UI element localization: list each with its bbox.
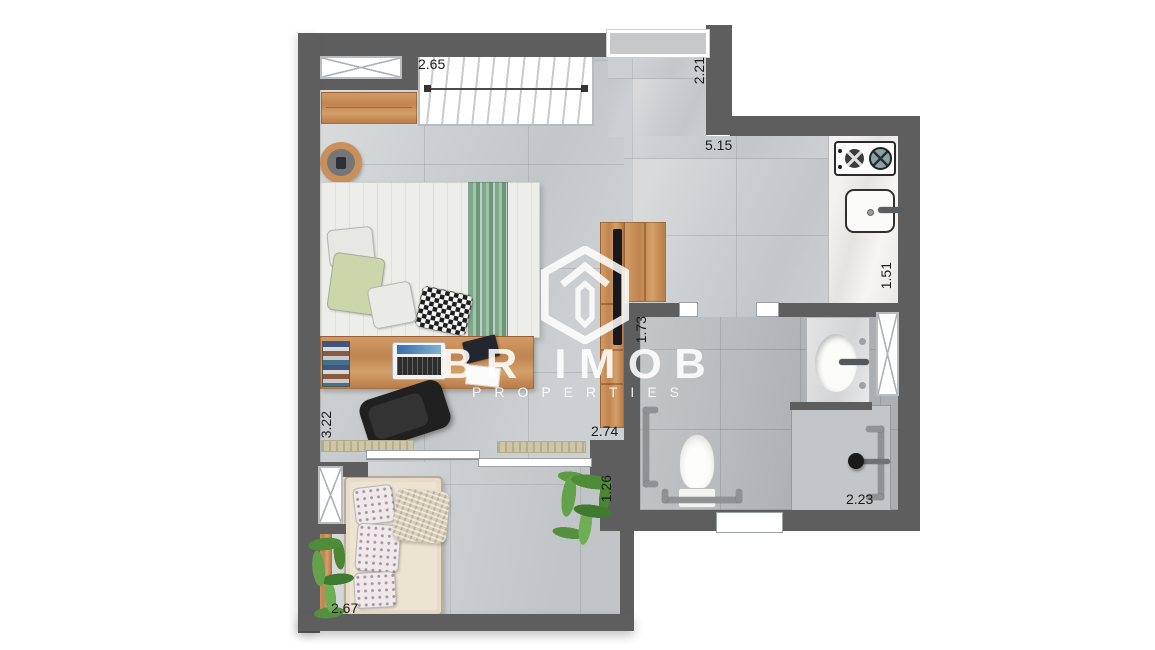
wall-kitchen-vertical — [706, 25, 732, 135]
storage-cabinet — [624, 222, 666, 302]
floor-plan-image: 2.652.215.151.511.732.743.221.262.232.67… — [0, 0, 1155, 650]
door-mat — [497, 441, 586, 453]
wardrobe-closet — [418, 55, 594, 126]
bedroom-window — [320, 56, 402, 79]
grab-bar — [643, 407, 658, 413]
potted-plant — [540, 455, 629, 561]
sink-drain — [867, 209, 874, 216]
bed-runner — [468, 182, 508, 338]
rod-end — [581, 85, 588, 92]
rod-end — [424, 85, 431, 92]
wall-shelf — [321, 92, 417, 124]
brand-hexagon-logo-icon — [541, 246, 629, 344]
watermark-brand: BR IMOB — [434, 340, 725, 388]
shower-head-icon — [848, 453, 864, 469]
bathroom-faucet — [839, 359, 869, 365]
balcony-window — [318, 466, 343, 524]
grab-bar — [662, 497, 742, 503]
closet-hanger-rod — [426, 88, 586, 90]
round-side-table — [320, 142, 362, 183]
stove-knob — [838, 149, 842, 153]
watermark-tagline: PROPERTIES — [452, 384, 712, 400]
grab-bar — [866, 494, 884, 500]
potted-plant — [297, 523, 365, 627]
grab-bar — [736, 489, 742, 503]
service-ledge — [607, 30, 709, 57]
bed-pillow — [366, 280, 417, 330]
burner-icon — [869, 147, 892, 170]
grab-bar — [643, 481, 658, 487]
throw-blanket — [392, 488, 450, 545]
bathroom-door-jamb — [756, 302, 779, 317]
kitchen-faucet — [878, 207, 904, 213]
stove-knob — [838, 165, 842, 169]
cooktop-stove — [834, 141, 896, 176]
soap-dish — [859, 382, 866, 389]
wall-right — [898, 130, 920, 531]
burner-icon — [845, 149, 864, 168]
daybed-pillow — [352, 484, 396, 527]
wall-kitchen-horizontal — [730, 116, 920, 136]
sliding-door-panel — [366, 450, 480, 459]
soap-dish — [859, 338, 866, 345]
kitchen-corridor-floor — [608, 57, 706, 137]
bathroom-door-jamb — [679, 302, 698, 317]
grab-bar — [643, 407, 649, 487]
grab-bar — [662, 489, 668, 503]
book-stack — [322, 341, 350, 387]
shower-partition-wall — [790, 402, 872, 410]
grab-bar — [866, 426, 884, 432]
bathroom-sink-counter — [806, 317, 870, 403]
bathroom-window — [876, 312, 899, 396]
entry-door — [716, 512, 783, 533]
